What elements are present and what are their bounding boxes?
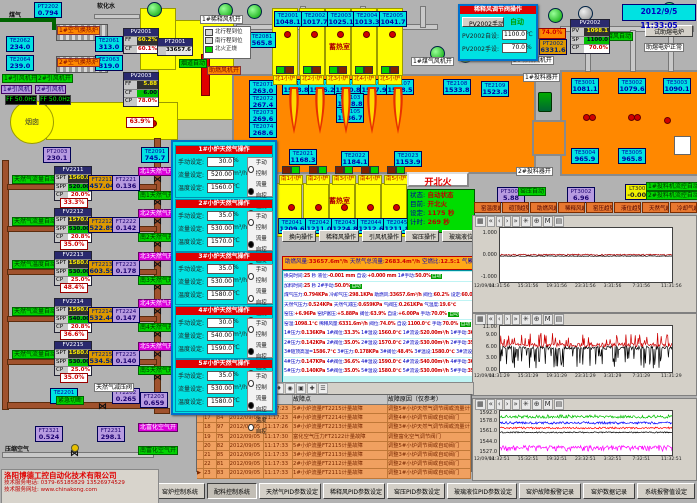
valve-icon[interactable]: ⋈ bbox=[153, 284, 162, 292]
alarm-row-7[interactable]: ▶23832012/09/0511:17:331#小炉流量FT2111计量故障调… bbox=[197, 469, 471, 478]
alarm-cell: 23 bbox=[204, 469, 217, 477]
radio-dot bbox=[248, 295, 254, 302]
south-burner-label-3: 南3小炉 bbox=[332, 175, 356, 185]
alarm-cell: 调整3#小炉天然气调节阀或流量计 bbox=[388, 423, 471, 431]
radio-label: 手动控制 bbox=[256, 212, 272, 234]
instrument-value: 268.6 bbox=[250, 130, 276, 137]
chart-xtick: 3:31:29 bbox=[604, 374, 628, 380]
company-name: 洛阳博德工控自动化技术有限公司 bbox=[4, 471, 156, 480]
chart-toolbar[interactable]: ▦«‹›»✳⊕M▤ bbox=[473, 216, 696, 227]
param-segment: 0.178KPa bbox=[355, 350, 380, 355]
north-burner-indicator-b-1 bbox=[285, 66, 294, 74]
param-segment: 助燃风: bbox=[374, 293, 389, 298]
radio-label: 手动控制 bbox=[256, 158, 272, 180]
instrument-value: 0.142 bbox=[113, 225, 139, 232]
field-input[interactable]: 35.0 bbox=[207, 371, 234, 381]
instrument-value: 0.136 bbox=[113, 183, 139, 190]
regenerator-label-north: 蓄热室 bbox=[329, 42, 350, 52]
fire-north-button[interactable]: 开北火 bbox=[407, 172, 469, 187]
alarm-cell: 调整4#小炉调节阀或自动阀门 bbox=[388, 414, 471, 422]
trend-chart-1: ▦«‹›»✳⊕M▤1.0000.000-1.00012/09/0411:31:5… bbox=[472, 215, 697, 313]
trend-button-1[interactable]: 碹顶趋势 bbox=[502, 202, 529, 213]
faceplate-row: 33657.6 bbox=[158, 46, 192, 55]
alarm-row-1[interactable]: 17842012/09/0511:17:234#小炉流量FT2214计量故障调整… bbox=[197, 414, 471, 423]
trend-button-6[interactable]: 天然气趋势 bbox=[642, 202, 669, 213]
mode-radio-group: 手动控制流量自控温度自控 bbox=[247, 264, 273, 304]
bottom-button-6[interactable]: 窑炉故障报警记录 bbox=[519, 483, 581, 499]
controller-row: SPP530.00 bbox=[55, 225, 91, 234]
field-unit: ℃ bbox=[233, 237, 246, 245]
param-segment: 1100.0℃ bbox=[407, 322, 431, 327]
param-segment: 设定: bbox=[451, 293, 462, 298]
param-segment: 298.1KPa bbox=[349, 293, 374, 298]
alarm-cell: 11:17:33 bbox=[264, 460, 293, 468]
instrument-value: 1184.1 bbox=[342, 159, 368, 166]
field-input[interactable]: 1580.0 bbox=[207, 397, 234, 407]
field-label: 手动设定: bbox=[178, 264, 208, 272]
faceplate-title: PV2003 bbox=[124, 73, 158, 80]
alarm-row-5[interactable]: 21852012/09/0511:17:333#小炉流量FT2113计量故障调整… bbox=[197, 451, 471, 460]
valve-icon[interactable]: ⋈ bbox=[153, 331, 162, 339]
chart-series-svg bbox=[500, 228, 672, 282]
faceplate-value: 6.00 bbox=[137, 90, 158, 98]
series-压力2 bbox=[500, 333, 672, 347]
chart-tool-icon[interactable]: » bbox=[512, 399, 520, 410]
chart-tool-icon[interactable]: ⊕ bbox=[532, 216, 542, 227]
chart-tool-icon[interactable]: ✳ bbox=[521, 399, 531, 410]
field-unit: ℃ bbox=[233, 344, 246, 352]
bottom-button-4[interactable]: 窑压PID参数设定 bbox=[387, 483, 445, 499]
alarm-row-3[interactable]: 19752012/09/0511:17:30富化空气压力FT2122计量故障调整… bbox=[197, 433, 471, 442]
instrument-value: 1079.6 bbox=[619, 86, 645, 93]
radio-dot bbox=[248, 402, 254, 409]
mode-radio-group: 手动控制流量自控温度自控 bbox=[247, 157, 273, 197]
status-row: 设定: 1175 秒 bbox=[410, 209, 472, 218]
instrument-box-TE2021: TE20211168.3 bbox=[289, 149, 317, 165]
field-input[interactable]: 530.00 bbox=[207, 384, 234, 394]
field-label: 温度设定: bbox=[178, 397, 208, 405]
bottom-button-5[interactable]: 玻璃液位PID参数设定 bbox=[447, 483, 517, 499]
field-label: 流量设定: bbox=[178, 224, 208, 232]
param-segment: 稀释风量: bbox=[319, 322, 339, 327]
field-input[interactable]: 1560.0 bbox=[207, 183, 234, 193]
chart-ytick: 1578.0 bbox=[473, 418, 497, 424]
instrument-box-PT3002: PT30026.96 bbox=[567, 187, 595, 203]
param-segment: 换向时间: bbox=[284, 274, 304, 279]
field-unit: % bbox=[233, 371, 246, 379]
instrument-value: 1090.1 bbox=[664, 86, 690, 93]
instrument-box-TE2064: TE2064239.0 bbox=[6, 55, 34, 71]
field-unit: m³/h bbox=[233, 224, 246, 232]
instrument-box-TE3005: TE3005965.8 bbox=[618, 148, 646, 164]
param-segment: 冷却气压: bbox=[329, 293, 349, 298]
flame-icon-4 bbox=[366, 87, 378, 135]
field-input[interactable]: 1580.0 bbox=[207, 290, 234, 300]
chart-tool-icon[interactable]: M bbox=[543, 314, 553, 325]
field-input[interactable]: 35.0 bbox=[207, 264, 234, 274]
field-unit: m³/h bbox=[233, 170, 246, 178]
alarm-cell: 82 bbox=[217, 442, 230, 450]
summary-label: 空燃比: bbox=[422, 259, 440, 265]
param-segment: 自动 bbox=[350, 284, 361, 289]
chimney: 烟囱 bbox=[10, 100, 54, 144]
field-input[interactable]: 520.00 bbox=[207, 170, 234, 180]
faceplate-row: CP70.0% bbox=[571, 44, 609, 53]
param-segment: 窑炉富压: bbox=[317, 312, 337, 317]
chart-toolbar[interactable]: ▦«‹›»✳⊕M▤ bbox=[473, 314, 696, 325]
param-segment: 540.00m³/h bbox=[420, 360, 450, 365]
popup-section-title: 1#小炉天然气操作 bbox=[176, 146, 272, 154]
valve-actuator-icon bbox=[71, 444, 79, 452]
boost-status-label: 助熔电炉正常 bbox=[644, 43, 684, 52]
north-burner-label-2: 北2小炉 bbox=[300, 75, 324, 85]
param-segment: 33.3% bbox=[344, 331, 361, 336]
chart-series-svg bbox=[500, 411, 672, 455]
valve-icon[interactable]: ⋈ bbox=[153, 261, 162, 269]
bottom-button-0[interactable]: 窑炉控制系统 bbox=[155, 483, 205, 499]
radio-label: 温度自控 bbox=[256, 416, 272, 438]
valve-icon[interactable]: ⋈ bbox=[153, 308, 162, 316]
field-label: 温度设定: bbox=[178, 344, 208, 352]
faceplate-key: CF bbox=[124, 46, 137, 54]
instrument-value: 0.140 bbox=[113, 358, 139, 365]
chart-xtick: 7:31:29 bbox=[632, 374, 656, 380]
chart-toolbar[interactable]: ▦«‹›»✳⊕M▤ bbox=[473, 399, 696, 410]
instrument-box-PT2003: PT2003230.1 bbox=[43, 147, 71, 163]
controller-FV2214[interactable]: FV2214SPT1590.0SPP540.00CP20.8% bbox=[54, 298, 92, 333]
field-input[interactable]: 530.00 bbox=[207, 224, 234, 234]
valve-icon[interactable]: ⋈ bbox=[153, 374, 162, 382]
alarm-cell: 2012/09/05 bbox=[230, 460, 265, 468]
valve-icon[interactable]: ⋈ bbox=[98, 403, 107, 411]
field-unit: ℃ bbox=[233, 183, 246, 191]
trend-button-3[interactable]: 稀释风趋势 bbox=[558, 202, 585, 213]
instrument-box-TE3001: TE30011081.1 bbox=[571, 78, 599, 94]
chart-tool-icon[interactable]: ▤ bbox=[554, 216, 565, 227]
mode-radio-0[interactable]: 手动控制 bbox=[248, 372, 272, 394]
chart-tool-icon[interactable]: « bbox=[487, 216, 495, 227]
chart-tool-icon[interactable]: ▦ bbox=[475, 216, 486, 227]
status-row: 状态: 自动状态 bbox=[410, 191, 472, 200]
field-unit: % bbox=[233, 264, 246, 272]
alarm-cell bbox=[197, 433, 204, 441]
alarm-row-6[interactable]: 22812012/09/0511:17:332#小炉流量FT2112计量故障调整… bbox=[197, 460, 471, 469]
flame-icon-5 bbox=[392, 87, 404, 135]
trend-button-5[interactable]: 液位趋势 bbox=[614, 202, 641, 213]
chart-tool-icon[interactable]: › bbox=[504, 314, 511, 325]
field-input[interactable]: 30.0 bbox=[207, 318, 234, 328]
chart-tool-icon[interactable]: ‹ bbox=[496, 399, 503, 410]
param-segment: 0.140KPa bbox=[301, 369, 326, 374]
instrument-box-TE2002: TE20021017.7 bbox=[301, 11, 329, 27]
radio-label: 手动控制 bbox=[256, 372, 272, 394]
press-box-FT2223: FT22230.178 bbox=[112, 260, 140, 276]
instrument-value: 0.524 bbox=[36, 434, 62, 441]
param-segment: 2#手动: bbox=[317, 284, 334, 289]
controller-FV2215[interactable]: FV2215SPT1580.0SPP530.00CP25.0% bbox=[54, 341, 92, 376]
trend-button-7[interactable]: 冷却气趋势 bbox=[670, 202, 697, 213]
mode-radio-0[interactable]: 手动控制 bbox=[248, 265, 272, 287]
label-21: 压缩空气 bbox=[4, 446, 30, 453]
alarm-cell: 5#小炉流量FT2215计量故障 bbox=[293, 405, 388, 413]
param-segment: +6.96Pa bbox=[295, 312, 318, 317]
bottom-button-7[interactable]: 窑炉数据记录 bbox=[583, 483, 635, 499]
trend-button-2[interactable]: 助燃风趋势 bbox=[530, 202, 557, 213]
faceplate-PV2001: PV2001FF60.2%CF60.1% bbox=[123, 28, 159, 54]
mode-radio-0[interactable]: 手动控制 bbox=[248, 158, 272, 180]
faceplate-key: SP bbox=[571, 37, 584, 45]
legend-text: 南行程到位 bbox=[215, 37, 243, 46]
alarm-row-4[interactable]: 20822012/09/0511:17:335#小炉流量FT2115计量故障调整… bbox=[197, 442, 471, 451]
param-segment: 5#温设: bbox=[361, 369, 378, 374]
chart-ytick: 1544.0 bbox=[473, 439, 497, 445]
trend-button-0[interactable]: 窑温度趋势 bbox=[474, 202, 501, 213]
chart-ytick: 9.00 bbox=[473, 332, 497, 338]
controller-key: SPT bbox=[55, 350, 68, 358]
mode-radio-2[interactable]: 温度自控 bbox=[248, 416, 272, 438]
param-segment: 48.4% bbox=[397, 350, 414, 355]
faceplate-key: FF bbox=[124, 37, 137, 45]
op-button-3[interactable]: 窑压操作 bbox=[405, 230, 439, 242]
param-segment: 气阀压: bbox=[384, 303, 399, 308]
controller-FV2213[interactable]: FV2213SPT1580.0SPP530.00CP25.0% bbox=[54, 251, 92, 286]
valve-position-5: 35.0% bbox=[60, 373, 88, 383]
mode-radio-group: 手动控制流量自控温度自控 bbox=[247, 371, 273, 411]
mode-radio-0[interactable]: 手动控制 bbox=[248, 319, 272, 341]
vfd-readout-1: FF 50.0Hz bbox=[5, 95, 37, 105]
valve-icon[interactable]: ⋈ bbox=[153, 351, 162, 359]
sensor-dot bbox=[634, 114, 641, 121]
instrument-box-TE2061: TE2061313.0 bbox=[95, 36, 123, 52]
radio-label: 流量自控 bbox=[256, 394, 272, 416]
north-burner-label-1: 北1小炉 bbox=[273, 75, 297, 85]
alarm-cell: 18 bbox=[204, 423, 217, 431]
gas-setpoint-popup: 1#小炉天然气操作手动设定:30.0%流量设定:520.00m³/h温度设定:1… bbox=[171, 140, 277, 415]
controller-FV2211[interactable]: FV2211SPT1560.0SPP520.00CP20.0% bbox=[54, 166, 92, 201]
chart-series-svg bbox=[500, 326, 672, 372]
alarm-cell: 11:17:33 bbox=[264, 442, 293, 450]
param-segment: 3#阀位: bbox=[380, 350, 397, 355]
alarm-cell: 调整2#小炉调节阀或自动阀门 bbox=[388, 460, 471, 468]
instrument-value: 1013.3 bbox=[354, 19, 380, 26]
controller-title: FV2213 bbox=[55, 252, 91, 259]
param-segment: 25 bbox=[304, 284, 312, 289]
param-segment: 0.147KPa bbox=[301, 360, 326, 365]
param-segment: 74.0% bbox=[380, 322, 397, 327]
aux-manual-button[interactable]: PV2002手动 bbox=[462, 17, 504, 27]
param-segment: 自设: bbox=[397, 322, 408, 327]
aux-row-unit: % bbox=[526, 44, 534, 52]
pipe bbox=[2, 160, 9, 410]
south-burner-indicator-a-2 bbox=[309, 166, 318, 174]
param-segment: 4#压力: bbox=[284, 360, 301, 365]
param-segment: 煤气压力: bbox=[284, 293, 304, 298]
vfd-readout-2: FF 50.0Hz bbox=[39, 95, 71, 105]
param-segment: 1098.1℃ bbox=[295, 322, 319, 327]
company-web: 技术服务网址: www.chinakong.com bbox=[4, 487, 156, 494]
south-burner-indicator-b-5 bbox=[396, 166, 405, 174]
field-unit: ℃ bbox=[233, 397, 246, 405]
alarm-tool-icon[interactable]: ▣ bbox=[296, 383, 306, 394]
bottom-button-1[interactable]: 配料控制系统 bbox=[207, 483, 257, 499]
chart-xtick: 11:32:51 bbox=[489, 457, 513, 463]
alarm-cell: 81 bbox=[217, 460, 230, 468]
flue-damper-position: 63.9% bbox=[126, 117, 154, 128]
param-segment: 63.9% bbox=[370, 312, 387, 317]
field-input[interactable]: 1590.0 bbox=[207, 344, 234, 354]
chart-tool-icon[interactable]: ▤ bbox=[554, 314, 565, 325]
valve-icon[interactable]: ⋈ bbox=[153, 199, 162, 207]
field-input[interactable]: 35.0 bbox=[207, 211, 234, 221]
summary-label: 天然气总流量: bbox=[350, 259, 385, 265]
alarm-cell: 4#小炉流量FT2214计量故障 bbox=[293, 414, 388, 422]
label-7: 2#引风机 bbox=[35, 85, 66, 94]
series-设定 bbox=[500, 256, 672, 257]
label-9: 烟道自动 bbox=[179, 59, 207, 68]
feeder-pump-icon bbox=[538, 92, 552, 112]
bottom-button-2[interactable]: 天然气PID参数设定 bbox=[259, 483, 321, 499]
param-segment: 5#阀位: bbox=[327, 369, 344, 374]
chart-tool-icon[interactable]: M bbox=[543, 399, 553, 410]
radio-dot bbox=[248, 219, 254, 226]
instrument-box-TE2108: TE21081533.8 bbox=[443, 79, 471, 95]
field-input[interactable]: 540.00 bbox=[207, 331, 234, 341]
param-segment: 2#压力: bbox=[284, 341, 301, 346]
chart-tool-icon[interactable]: ✳ bbox=[521, 314, 531, 325]
instrument-value: 0.659 bbox=[141, 400, 167, 407]
north-burner-label-4: 北4小炉 bbox=[352, 75, 376, 85]
instrument-box-FT2321: FT23210.524 bbox=[35, 426, 63, 442]
press-box-FT2224: FT22240.147 bbox=[112, 307, 140, 323]
chart-tool-icon[interactable]: ‹ bbox=[496, 216, 503, 227]
chart-xtick: 19:32:51 bbox=[546, 457, 570, 463]
chart-tool-icon[interactable]: ▤ bbox=[554, 399, 565, 410]
duct bbox=[46, 102, 178, 140]
trend-button-4[interactable]: 窑压趋势 bbox=[586, 202, 613, 213]
summary-value: 2683.4m³/h bbox=[385, 259, 422, 265]
chart-plot-area bbox=[499, 227, 673, 283]
param-segment: 1580.0℃ bbox=[432, 350, 456, 355]
field-unit: ℃ bbox=[233, 290, 246, 298]
param-segment: 3#压力: bbox=[337, 350, 354, 355]
param-segment: 液位: bbox=[317, 274, 328, 279]
mode-radio-1[interactable]: 流量自控 bbox=[248, 394, 272, 416]
chart-xtick: 23:32:51 bbox=[575, 457, 599, 463]
chart-xtick: 3:32:51 bbox=[604, 457, 628, 463]
valve-icon[interactable]: ⋈ bbox=[153, 176, 162, 184]
param-segment: 手动: bbox=[421, 312, 432, 317]
chart-tool-icon[interactable]: › bbox=[504, 216, 511, 227]
chart-ytick: -1.000 bbox=[473, 274, 497, 280]
field-input[interactable]: 1570.0 bbox=[207, 237, 234, 247]
chart-tool-icon[interactable]: ▦ bbox=[475, 399, 486, 410]
chart-tool-icon[interactable]: › bbox=[504, 399, 511, 410]
aux-row-input[interactable]: 70.0 bbox=[502, 43, 527, 53]
param-row-2: 煤气压力:0.794KPa 冷却气压:298.1KPa 助燃风:33657.6m… bbox=[284, 291, 480, 300]
press-box-FT2222: FT22220.142 bbox=[112, 217, 140, 233]
auto-mode-label-3: 天然气温度自动 bbox=[12, 260, 58, 269]
aux-row-mode: PV2002手动自动 bbox=[462, 17, 534, 27]
controller-FV2212[interactable]: FV2212SPT1570.0SPP530.00CP20.8% bbox=[54, 208, 92, 243]
field-input[interactable]: 30.0 bbox=[207, 157, 234, 167]
chart-tool-icon[interactable]: « bbox=[487, 399, 495, 410]
valve-icon[interactable]: ⋈ bbox=[153, 218, 162, 226]
field-label: 手动设定: bbox=[178, 318, 208, 326]
chart-tool-icon[interactable]: » bbox=[512, 314, 520, 325]
param-row-0: 换向时间:25 秒 液位:-0.001 mm 自设:+0.000 mm 1#手动… bbox=[284, 272, 480, 281]
param-segment: 窑温: bbox=[284, 322, 295, 327]
controller-row: SPT1580.0 bbox=[55, 259, 91, 268]
auto-mode-label-2: 天然气流量自动 bbox=[12, 217, 58, 226]
legend-row: 北火正烧 bbox=[205, 45, 249, 54]
alarm-tool-icon[interactable]: ☰ bbox=[318, 383, 328, 394]
op-button-2[interactable]: 引风机操作 bbox=[362, 230, 402, 242]
popup-section-title: 2#小炉天然气操作 bbox=[176, 200, 272, 208]
valve-icon[interactable]: ⋈ bbox=[153, 241, 162, 249]
op-button-1[interactable]: 稀释风操作 bbox=[319, 230, 359, 242]
chart-ytick: 11.00 bbox=[473, 324, 497, 330]
mode-radio-0[interactable]: 手动控制 bbox=[248, 212, 272, 234]
label-18: 2#投料机流控自动 bbox=[646, 191, 697, 200]
chart-tool-icon[interactable]: ⊕ bbox=[532, 314, 542, 325]
instrument-value: 1533.8 bbox=[444, 87, 470, 94]
chart-xtick: 15:31:29 bbox=[518, 374, 542, 380]
north-burner-label-3: 北3小炉 bbox=[326, 75, 350, 85]
sensor-dot bbox=[288, 204, 295, 211]
alarm-cell: 84 bbox=[217, 414, 230, 422]
alarm-row-2[interactable]: 18972012/09/0511:17:263#小炉流量FT2213计量故障调整… bbox=[197, 423, 471, 432]
furnace-body bbox=[532, 120, 566, 156]
controller-key: SPP bbox=[55, 269, 68, 277]
chart-ytick: 0.000 bbox=[473, 252, 497, 258]
pipe bbox=[94, 14, 140, 19]
north-burner-indicator-a-1 bbox=[276, 66, 285, 74]
north-burner-indicator-a-3 bbox=[329, 66, 338, 74]
instrument-value: 1168.3 bbox=[290, 157, 316, 164]
chart-ytick: 6.00 bbox=[473, 344, 497, 350]
north-burner-indicator-a-2 bbox=[303, 66, 312, 74]
chart-tool-icon[interactable]: » bbox=[512, 216, 520, 227]
instrument-box-TE2109: TE21091523.8 bbox=[481, 81, 509, 97]
chart-tool-icon[interactable]: M bbox=[543, 216, 553, 227]
company-phone: 技术服务电话: 0379-65185829 13526974529 bbox=[4, 480, 156, 487]
instrument-box-TE3003: TE30031090.1 bbox=[663, 78, 691, 94]
alarm-cell bbox=[197, 451, 204, 459]
faceplate-row: PV1098.1 bbox=[571, 27, 609, 36]
alarm-cell: 调整5#小炉调节阀或自动阀门 bbox=[388, 442, 471, 450]
aux-row-input[interactable]: 1100.0 bbox=[502, 30, 527, 40]
param-segment: 3#流设: bbox=[456, 350, 473, 355]
alarm-tool-icon[interactable]: ✚ bbox=[307, 383, 317, 394]
param-segment: 0.659KPa bbox=[358, 303, 383, 308]
chart-tool-icon[interactable]: ⊕ bbox=[532, 399, 542, 410]
param-row-7: 2#压力:0.142KPa 2#阀位:35.0% 2#温设:1570.0℃ 2#… bbox=[284, 339, 480, 348]
valve-position-2: 35.0% bbox=[60, 240, 88, 250]
alarm-cell: 20 bbox=[204, 442, 217, 450]
alarm-header-cell: 故障原因（仅参考） bbox=[388, 395, 471, 404]
chart-xtick: 11:32:51 bbox=[661, 457, 685, 463]
param-segment: 手动: bbox=[432, 322, 443, 327]
op-button-0[interactable]: 换向操作 bbox=[282, 230, 316, 242]
chart-tool-icon[interactable]: ✳ bbox=[521, 216, 531, 227]
param-segment: 0.524KPa bbox=[308, 303, 333, 308]
label-4: 1#引风机开 bbox=[2, 74, 39, 83]
bottom-button-8[interactable]: 系统报警值设定 bbox=[637, 483, 695, 499]
bottom-button-3[interactable]: 稀释风PID参数设定 bbox=[323, 483, 385, 499]
alarm-tool-icon[interactable]: ◉ bbox=[285, 383, 295, 394]
field-label: 流量设定: bbox=[178, 384, 208, 392]
field-input[interactable]: 530.00 bbox=[207, 277, 234, 287]
